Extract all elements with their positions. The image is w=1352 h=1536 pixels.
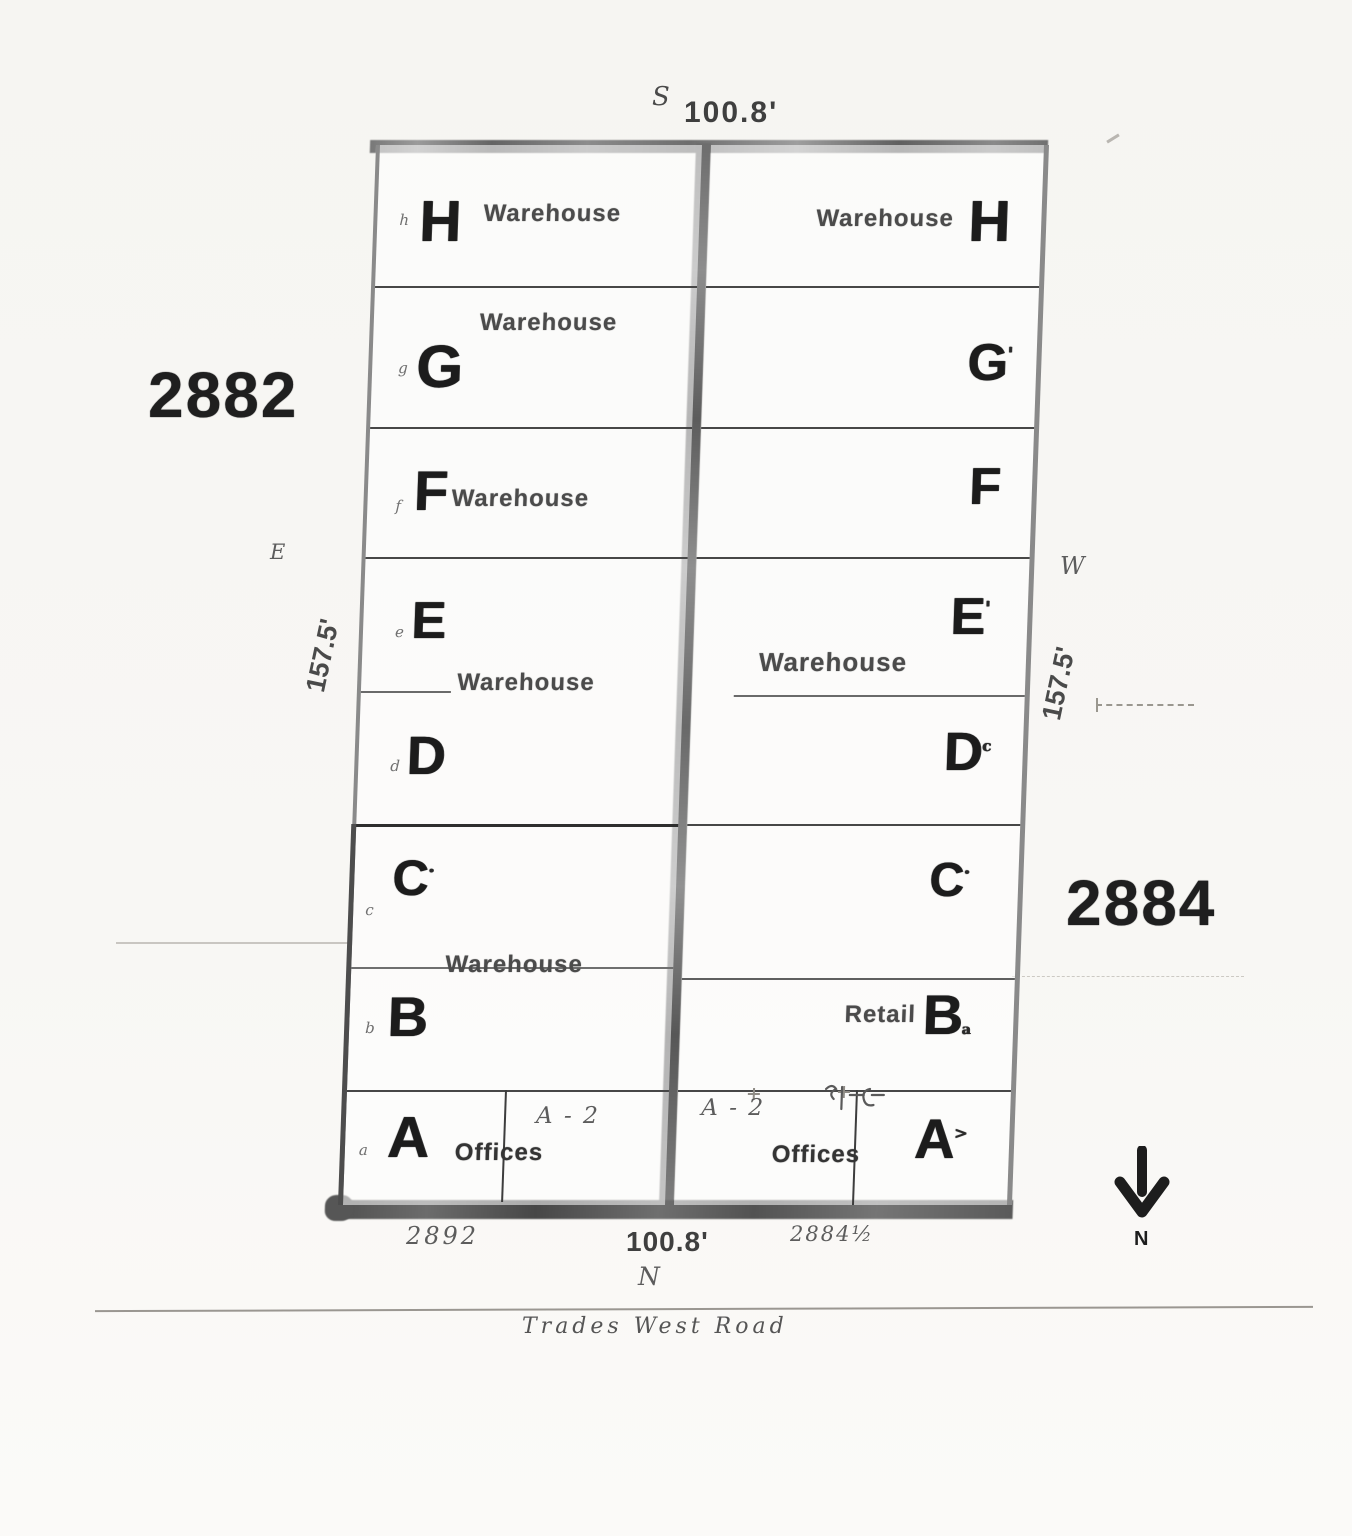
unit-h-small-mark: h: [399, 211, 409, 229]
unit-e-small-mark: e: [395, 623, 405, 641]
unit-G-letter: G: [415, 337, 463, 397]
unit-E-letter: E': [950, 591, 992, 643]
divider-D-C: [687, 824, 1020, 826]
dimension-tick: [1096, 698, 1098, 712]
unit-g-small-mark: g: [398, 359, 408, 377]
divider-H-G: [375, 286, 697, 288]
unit-C-mark: ·: [427, 858, 435, 882]
divider-G-F: [370, 427, 692, 429]
scanned-site-plan: S 100.8' 2882 2884 E 157.5' W 157.5': [0, 0, 1352, 1536]
unit-F-use-label: Warehouse: [451, 485, 589, 513]
stray-mark: [1106, 134, 1119, 144]
bottom-address-left: 2892: [406, 1222, 479, 1250]
bottom-dimension-label: 100.8': [626, 1226, 709, 1258]
divider-D-C-thick: [352, 824, 678, 827]
unit-C-mark: ·: [963, 860, 971, 884]
unit-B-letter: Ba: [922, 987, 972, 1043]
unit-f-small-mark: f: [395, 497, 401, 515]
divider-B-A: [347, 1090, 669, 1092]
left-side-direction-label: E: [270, 540, 285, 564]
divider-E-D-partial: [734, 695, 1025, 697]
top-dimension-label: 100.8': [684, 96, 778, 130]
unit-d-small-mark: d: [390, 757, 400, 775]
unit-F-letter: F: [968, 461, 1001, 513]
unit-B-use-label: Retail: [844, 1001, 916, 1029]
road-line: [95, 1306, 1313, 1312]
north-arrow-icon: [1112, 1146, 1172, 1222]
bottom-direction-label: N: [638, 1262, 660, 1291]
left-building-number: 2882: [148, 358, 298, 432]
unit-E-letter: E: [410, 595, 446, 647]
unit-C-letter: C·: [928, 857, 970, 905]
right-building-number: 2884: [1066, 866, 1216, 940]
unit-B-mark: a: [961, 1022, 971, 1038]
unit-A-zone-note: A - 2: [536, 1103, 601, 1129]
left-side-dimension-label: 157.5': [298, 608, 347, 702]
right-side-dimension-label: 157.5': [1034, 636, 1083, 730]
unit-G-use-label: Warehouse: [479, 309, 617, 337]
ed-shared-use-label: Warehouse: [457, 669, 595, 697]
survey-line-left: [116, 942, 352, 944]
unit-D-letter: Dc: [943, 725, 992, 779]
unit-A-letter: A>: [913, 1111, 968, 1167]
unit-b-small-mark: b: [365, 1019, 375, 1037]
unit-C-letter: C·: [392, 853, 436, 903]
divider-H-G: [706, 286, 1039, 288]
divider-G-F: [701, 427, 1034, 429]
unit-A-use-label: Offices: [771, 1141, 860, 1169]
unit-G-letter: G': [966, 337, 1013, 389]
right-building: Warehouse H G' F E' Warehouse Dc C· Reta…: [674, 145, 1049, 1205]
divider-F-E: [366, 557, 688, 559]
unit-A-mark: >: [954, 1123, 968, 1142]
unit-F-letter: F: [413, 463, 448, 519]
unit-D-mark: c: [982, 737, 992, 755]
ed-shared-use-label: Warehouse: [758, 647, 907, 678]
unit-H-use-label: Warehouse: [816, 205, 954, 233]
unit-H-letter: H: [967, 193, 1010, 251]
unit-a-small-mark: a: [359, 1141, 369, 1159]
unit-E-mark: ': [984, 597, 991, 621]
dimension-extension-dashes: [1096, 704, 1194, 706]
divider-F-E: [697, 557, 1030, 559]
survey-line-right: [1012, 976, 1244, 977]
top-direction-label: S: [652, 82, 670, 112]
north-arrow-label: N: [1134, 1228, 1148, 1251]
divider-C-B: [682, 978, 1015, 980]
cb-shared-use-label: Warehouse: [445, 951, 583, 979]
right-side-direction-label: W: [1060, 552, 1085, 580]
left-building: h H Warehouse Warehouse g G f F Warehous…: [339, 145, 702, 1205]
unit-B-letter: B: [387, 989, 428, 1045]
unit-H-letter: H: [418, 193, 461, 251]
unit-H-use-label: Warehouse: [483, 200, 621, 228]
unit-c-small-mark: c: [365, 901, 374, 919]
site-plan-body: h H Warehouse Warehouse g G f F Warehous…: [339, 145, 1044, 1205]
divider-E-D-partial: [361, 691, 451, 693]
handwritten-scribble: [819, 1081, 890, 1117]
unit-A-zone-note: A - 2: [701, 1095, 766, 1121]
unit-A-letter: A: [386, 1109, 429, 1167]
unit-G-mark: ': [1007, 343, 1014, 367]
unit-D-letter: D: [406, 729, 446, 783]
road-name-label: Trades West Road: [522, 1314, 788, 1339]
bottom-address-right: 2884½: [790, 1222, 874, 1246]
unit-A-use-label: Offices: [454, 1139, 543, 1167]
